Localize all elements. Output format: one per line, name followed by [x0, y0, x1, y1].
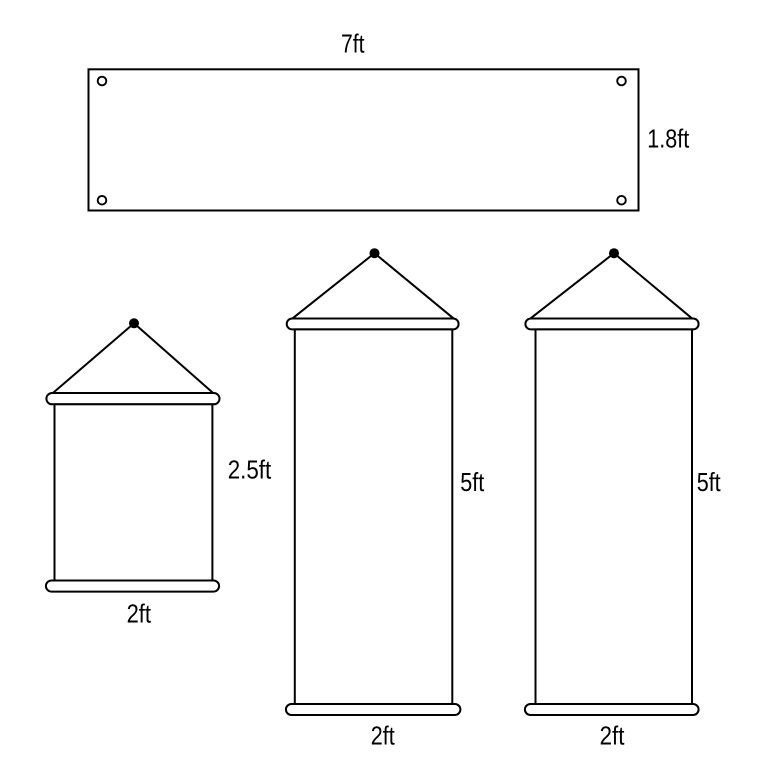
svg-text:7ft: 7ft: [341, 29, 365, 59]
svg-text:2ft: 2ft: [371, 721, 396, 751]
svg-text:1.8ft: 1.8ft: [647, 124, 690, 154]
svg-text:2ft: 2ft: [600, 721, 625, 751]
svg-text:2ft: 2ft: [127, 599, 152, 629]
svg-text:5ft: 5ft: [460, 467, 485, 497]
svg-text:2.5ft: 2.5ft: [228, 455, 272, 485]
svg-text:5ft: 5ft: [697, 467, 722, 497]
